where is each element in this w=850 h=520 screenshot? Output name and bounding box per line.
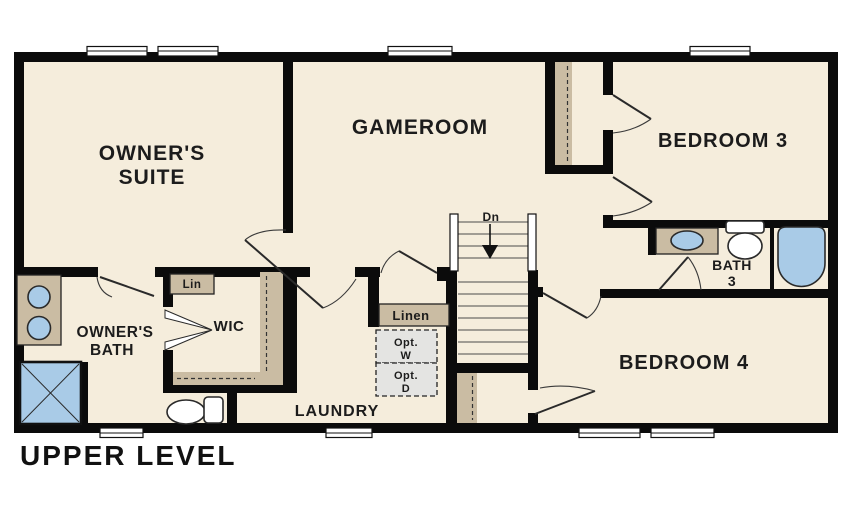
bedroom4-label: BEDROOM 4: [619, 352, 749, 374]
gameroom-label: GAMEROOM: [352, 116, 488, 139]
stair-rail: [528, 214, 536, 271]
opt-washer-label-2: W: [401, 350, 412, 362]
owners-suite-label: OWNER'S: [99, 142, 206, 165]
window-icon: [579, 428, 640, 438]
sink-icon: [28, 317, 51, 340]
bath3-label: BATH: [712, 257, 752, 273]
window-icon: [158, 47, 218, 57]
owners-bath-label-2: BATH: [90, 342, 134, 359]
bathtub-icon: [778, 227, 825, 287]
linen-label: Linen: [392, 308, 429, 323]
opt-washer-label: Opt.: [394, 337, 418, 349]
toilet-icon: [726, 221, 764, 259]
owners-suite-label-2: SUITE: [119, 166, 186, 189]
stairs-dn-label: Dn: [483, 210, 500, 224]
window-icon: [100, 428, 143, 438]
opt-dryer-label-2: D: [402, 383, 410, 395]
window-icon: [690, 47, 750, 57]
bedroom4-closet-rod: [457, 373, 477, 423]
laundry-label: LAUNDRY: [295, 403, 380, 420]
owners-bath-label: OWNER'S: [77, 324, 154, 341]
window-icon: [326, 428, 372, 438]
bath3-label-2: 3: [728, 273, 736, 289]
sink-icon: [28, 286, 50, 308]
shower-icon: [20, 362, 81, 424]
window-icon: [388, 47, 452, 57]
floor-plan: OWNER'S SUITE GAMEROOM BEDROOM 3 BEDROOM…: [0, 0, 850, 520]
wic-shelf-right: [260, 272, 283, 383]
page-title: UPPER LEVEL: [20, 440, 236, 471]
wic-label: WIC: [214, 318, 245, 335]
bedroom3-label: BEDROOM 3: [658, 130, 788, 152]
window-icon: [651, 428, 714, 438]
window-icon: [87, 47, 147, 57]
sink-icon: [671, 231, 703, 250]
lin-label: Lin: [183, 279, 202, 291]
stair-rail: [450, 214, 458, 271]
bedroom3-closet-rod: [555, 62, 572, 165]
opt-dryer-label: Opt.: [394, 370, 418, 382]
